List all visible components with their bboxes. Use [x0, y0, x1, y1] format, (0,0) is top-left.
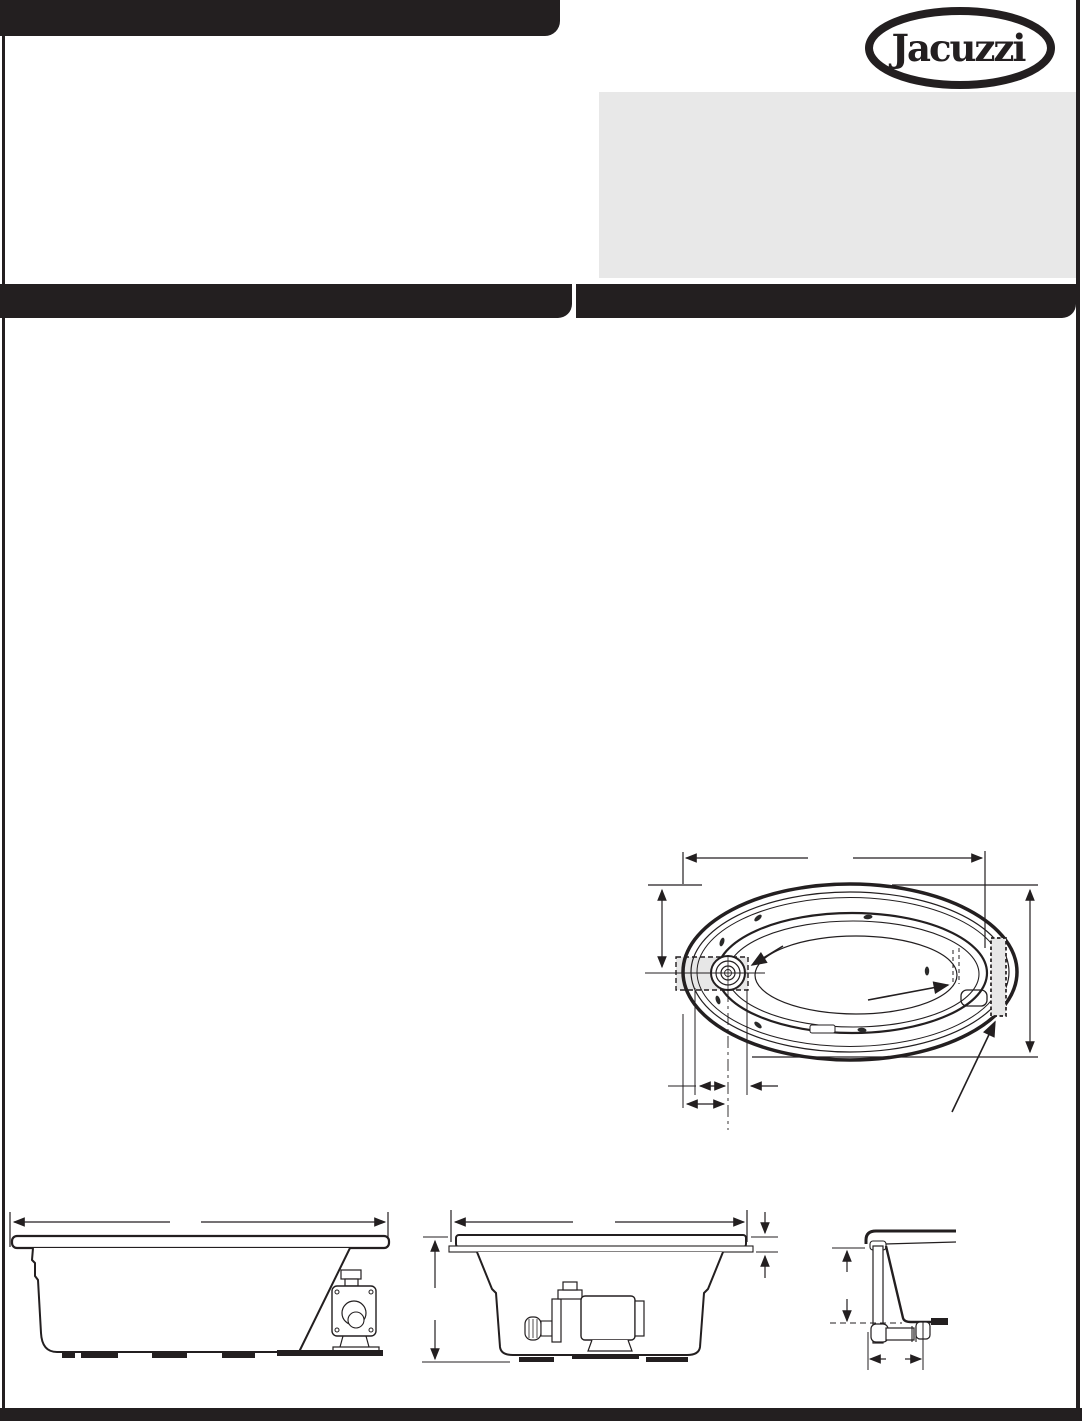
- pump-mounting-base: [572, 1354, 639, 1359]
- bathtub-top-view-drawing: [640, 838, 1082, 1138]
- footer-bar: [0, 1408, 1082, 1421]
- tub-body-profile: [32, 1248, 350, 1352]
- pump-zone-leader-arrow: [952, 1022, 995, 1112]
- model-info-panel: [599, 92, 1076, 278]
- bathtub-side-elevation-drawing: [5, 1200, 400, 1372]
- levelling-feet: [62, 1353, 255, 1358]
- waste-outlet-bar: [931, 1318, 948, 1325]
- right-border-rule: [1076, 0, 1080, 1421]
- drain-piping: [871, 1322, 930, 1342]
- overflow-height-dimension: [832, 1248, 865, 1321]
- logo-wordmark: Jacuzzi: [889, 26, 1027, 70]
- pump-assembly: [332, 1270, 379, 1351]
- section-heading-bar-right: [576, 284, 1076, 318]
- pump-location-zone: [991, 938, 1006, 1016]
- drain-offset-dimension: [648, 885, 702, 967]
- tub-wall-section: [886, 1246, 931, 1322]
- pump-mounting-base: [277, 1350, 383, 1356]
- bathtub-end-elevation-drawing: [418, 1200, 790, 1375]
- jacuzzi-logo: Jacuzzi ®: [862, 6, 1058, 90]
- tub-rim-flange: [449, 1246, 753, 1252]
- section-heading-bar-left: [0, 284, 572, 318]
- rim-thickness-dimension: [751, 1212, 778, 1278]
- registered-trademark-symbol: ®: [1014, 70, 1025, 83]
- drain-leader-arrow: [752, 946, 783, 965]
- suction-cover-fitting: [810, 1025, 835, 1033]
- suction-leader-arrow: [868, 985, 948, 1000]
- tub-rim-profile: [12, 1236, 389, 1248]
- spec-sheet-page: Jacuzzi ®: [0, 0, 1082, 1421]
- header-title-bar: [0, 0, 560, 36]
- drain-overflow-detail-drawing: [828, 1215, 1018, 1380]
- tub-rim-profile: [456, 1235, 746, 1247]
